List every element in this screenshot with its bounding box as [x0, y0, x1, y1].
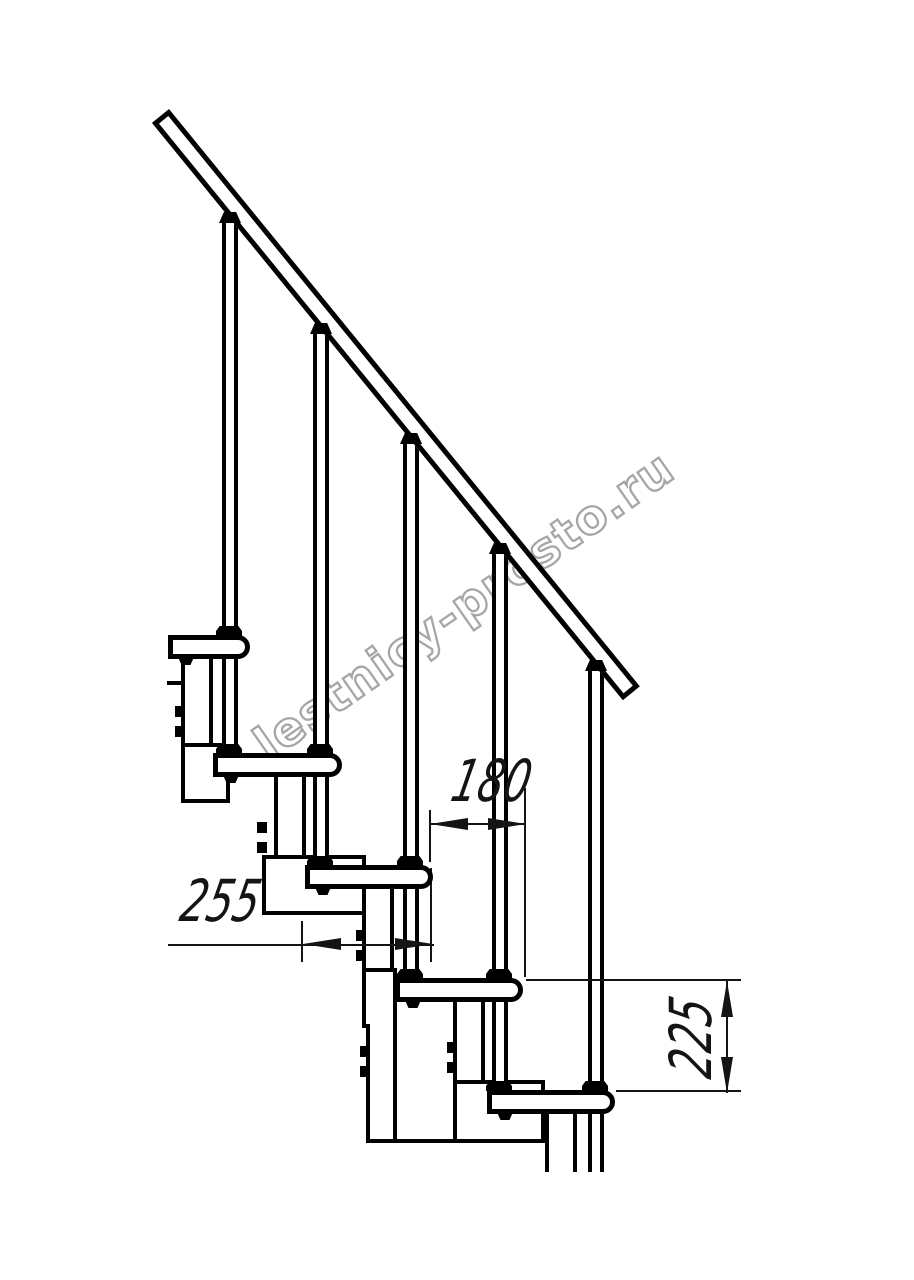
module-2-column [274, 776, 306, 856]
baluster-3-foot-tread-4 [397, 969, 423, 979]
baluster-2-clamp-tread-2 [307, 744, 333, 754]
module-3-lower-box [366, 1024, 397, 1143]
module-3-bolt-2 [356, 950, 366, 961]
module-1-bolt-1 [175, 706, 185, 717]
baluster-2 [313, 331, 329, 866]
baluster-5-lower-line-2 [600, 1113, 604, 1172]
tread-3 [305, 865, 433, 889]
module-3-column [362, 888, 394, 969]
module-4-column [453, 1001, 485, 1081]
baluster-2-foot-tread-3 [307, 856, 333, 866]
module-1-bolt-2 [175, 726, 185, 737]
module-4-bolt-2 [447, 1062, 457, 1073]
dim-180-arrow-right [488, 818, 526, 830]
module-base-line [366, 1139, 547, 1143]
module-5-line-left [545, 1113, 549, 1172]
module-3-bolt-3 [360, 1046, 370, 1057]
module-2-bolt-1 [257, 822, 267, 833]
baluster-4-clamp-tread-4 [486, 969, 512, 979]
baluster-3-clamp-tread-3 [397, 856, 423, 866]
dim-255-arrow-left [303, 938, 341, 950]
dim-255-arrow-right [395, 938, 433, 950]
tread-1 [168, 635, 250, 659]
module-4-bolt-1 [447, 1042, 457, 1053]
baluster-1-foot-tread-2 [216, 744, 242, 754]
baluster-3 [403, 441, 419, 979]
staircase-drawing: lestnicy-prosto.ru [0, 0, 914, 1280]
baluster-5-lower-line-1 [588, 1113, 592, 1172]
dim-180-ext-right [524, 788, 526, 977]
module-1-tab [167, 681, 182, 685]
module-1-column [181, 658, 213, 744]
baluster-1-clamp-tread-1 [216, 626, 242, 636]
tread-2 [213, 753, 342, 777]
baluster-4-foot-tread-5 [486, 1081, 512, 1091]
module-2-bolt-2 [257, 842, 267, 853]
dim-180-label: 180 [447, 752, 558, 810]
module-3-box [362, 968, 397, 1028]
baluster-1 [222, 220, 238, 754]
module-3-bolt-1 [356, 930, 366, 941]
module-3-bolt-4 [360, 1066, 370, 1077]
baluster-5 [588, 668, 604, 1091]
dim-255-label: 255 [176, 872, 287, 930]
dim-225-label: 225 [662, 971, 720, 1082]
module-5-line-right [573, 1113, 577, 1172]
tread-4-bolt [405, 1000, 421, 1008]
tread-4 [395, 978, 523, 1002]
baluster-5-foot-tread-5 [582, 1081, 608, 1091]
dim-180-arrow-left [430, 818, 468, 830]
tread-5 [487, 1090, 615, 1114]
